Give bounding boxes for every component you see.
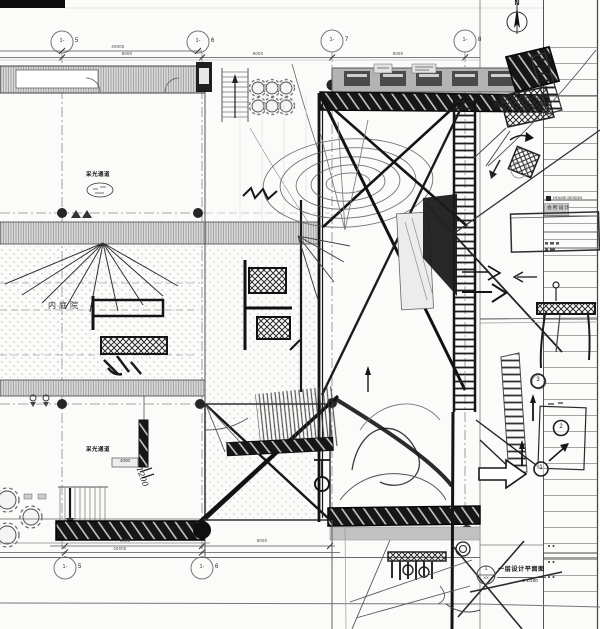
caption-ref-top: 1 — [478, 567, 494, 573]
dim-bottom-bay-2: 9000 — [240, 539, 284, 544]
grid-num-5: 5 — [75, 38, 78, 45]
dim-top-bay-1: 9000 — [105, 52, 149, 57]
dim-bottom-bay-1: 9000 — [103, 539, 147, 544]
grid-bubble-1-6: 1- — [188, 38, 208, 44]
grid-num-bottom-5: 5 — [78, 564, 81, 571]
dim-top-bay-3: 9000 — [376, 52, 420, 57]
grid-num-6: 6 — [211, 38, 214, 45]
dim-top-bay-2: 9000 — [236, 52, 280, 57]
grid-num-7: 7 — [345, 37, 348, 44]
flow-arrow-left — [514, 272, 537, 282]
round-tables-top — [250, 80, 295, 115]
grid-num-8: 8 — [478, 37, 481, 44]
architectural-sketch-sheet: N 1- 5 1- 6 1- 7 1- 8 1- 5 1- 6 40000 90… — [0, 0, 600, 629]
grid-bubble-1-8: 1- — [455, 37, 475, 43]
sequence-number-2: 2 — [554, 424, 568, 431]
dim-top-overall: 40000 — [96, 45, 140, 50]
sequence-number-1: 1 — [534, 465, 548, 472]
titleblock-logo-square — [546, 196, 551, 201]
caption-scale: S 1/100 — [522, 578, 538, 583]
dim-bottom-overall: 40000 — [98, 547, 142, 552]
label-courtyard: 内庭院 — [48, 302, 81, 311]
drawing-linework — [0, 0, 600, 629]
stair-top — [222, 68, 248, 122]
grid-bubble-1-5: 1- — [52, 38, 72, 44]
label-light-channel-bottom: 采光通道 — [86, 447, 110, 453]
grid-bubble-1-7: 1- — [322, 37, 342, 43]
north-label: N — [510, 0, 524, 8]
tag-4000: 4000 — [112, 459, 138, 464]
south-wall-band — [0, 380, 205, 396]
caption-ref-bottom: XX — [478, 576, 494, 580]
mid-wall-band — [0, 222, 320, 244]
titleblock-en: HOUSE DESIGN — [553, 196, 582, 200]
sketch-wall-bottom — [328, 506, 480, 526]
label-light-channel-top: 采光通道 — [86, 172, 110, 178]
courtyard-stipple — [0, 246, 205, 378]
round-tables-bottom — [0, 488, 46, 547]
caption-title: 一层设计平面图 — [498, 567, 545, 574]
room-tag-oval — [87, 183, 113, 197]
grid-num-bottom-6: 6 — [215, 564, 218, 571]
grid-bubble-bottom-1-6: 1- — [192, 564, 212, 570]
column-symbols — [30, 395, 49, 407]
grid-bubble-bottom-1-5: 1- — [55, 564, 75, 570]
sequence-number-3: 3 — [531, 377, 545, 384]
sketch-wall-bottom-left — [56, 521, 204, 540]
titleblock-cn: 会所设计 — [547, 206, 570, 211]
